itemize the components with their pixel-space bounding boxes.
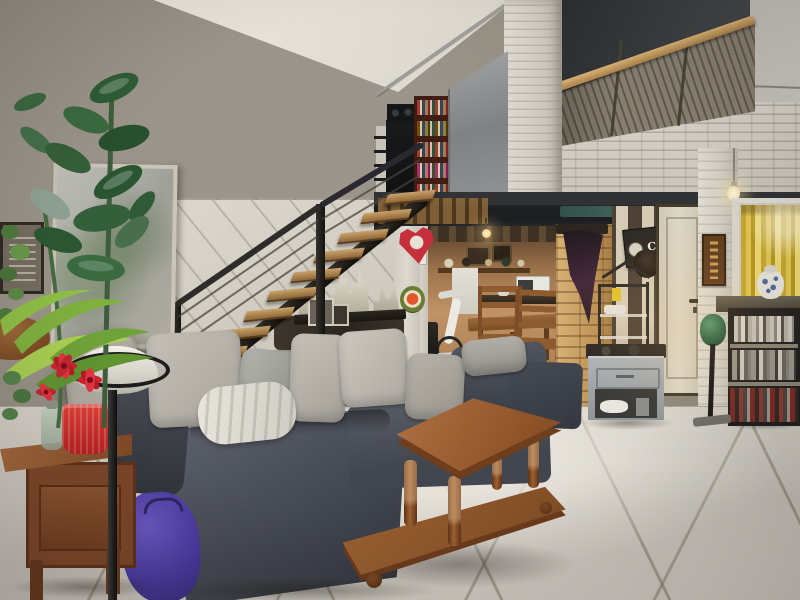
sloped-ceiling bbox=[150, 0, 515, 92]
book-row bbox=[417, 100, 453, 115]
coffee-table-foot bbox=[540, 502, 552, 514]
rack-item bbox=[604, 305, 626, 314]
yellow-tag bbox=[612, 288, 621, 301]
side-table-leg bbox=[30, 560, 43, 600]
rack-wire-shelf bbox=[600, 314, 647, 317]
shelf-ledge bbox=[730, 344, 798, 348]
shelf-ledge bbox=[728, 382, 800, 386]
book-row bbox=[417, 121, 453, 136]
glass bbox=[636, 398, 649, 416]
vertical-calligraphy-sign bbox=[702, 234, 726, 286]
speakers bbox=[387, 104, 415, 122]
door-keyhole bbox=[693, 307, 697, 313]
picture-frame bbox=[332, 304, 349, 326]
kitchen-shelf-items bbox=[440, 256, 528, 268]
rack-wire-shelf bbox=[600, 336, 647, 339]
sliding-metal-panel bbox=[448, 48, 508, 198]
coffee-table-leg bbox=[404, 460, 417, 526]
cabinet-drawer bbox=[596, 368, 660, 389]
pendant-light bbox=[482, 229, 491, 238]
loft-living-room-photo: CAFE bbox=[0, 0, 800, 600]
coffee-table-leg bbox=[448, 476, 461, 546]
door-panel bbox=[666, 217, 698, 379]
dvd-spines bbox=[734, 316, 794, 342]
plaster-wall bbox=[750, 0, 800, 114]
armrest-cushion bbox=[460, 335, 527, 377]
bike-handlebar bbox=[438, 288, 467, 300]
plants-illustration bbox=[0, 36, 200, 466]
book-row bbox=[417, 163, 453, 178]
vacuum-head bbox=[700, 314, 726, 346]
ginger-jar bbox=[757, 270, 784, 299]
dvd-spines bbox=[732, 350, 796, 380]
rack-crossbar bbox=[598, 284, 649, 287]
white-sneakers bbox=[600, 400, 628, 413]
bag-strap bbox=[143, 496, 184, 514]
media-shelf bbox=[728, 308, 800, 426]
sofa-cushion bbox=[337, 328, 410, 409]
shoe-cabinet bbox=[588, 356, 664, 420]
jar-lid bbox=[764, 265, 777, 273]
kitchen-ceiling-slats bbox=[420, 226, 568, 242]
coffee-table-foot bbox=[366, 572, 382, 588]
dvd-spines bbox=[730, 388, 798, 422]
drawer-handle bbox=[616, 375, 634, 378]
